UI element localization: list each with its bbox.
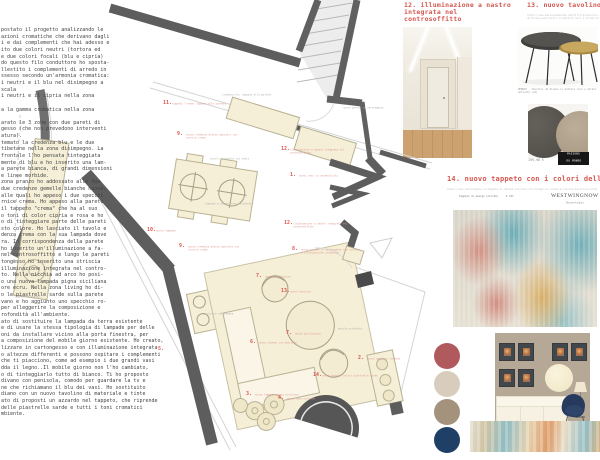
description-line: ito due colori neutri (tortora ed (1, 47, 164, 54)
description-line: sto colore. Ho lasciato il tavolo e (1, 226, 164, 233)
color-swatch (434, 399, 460, 425)
description-line: nel controsoffitto e lungo le pareti (1, 252, 164, 259)
description-line: vano e ho aggiunto uno specchio ro- (1, 299, 164, 306)
description-line: e di usare la stessa tipologia di lampad… (1, 325, 164, 332)
description-line: o una nuova lampada pigna siciliana (1, 279, 164, 286)
description-line: ato di proposti un azzardo nel tappeto, … (1, 398, 164, 405)
label-annotation: illuminazione a nastro integrata nel con… (293, 223, 353, 229)
description-line: mbiente. (1, 411, 164, 418)
description-line: o altezze differenti e possono ospitare … (1, 352, 164, 359)
rug-heading: 14. nuovo tappeto con i colori delle pia… (447, 176, 600, 183)
description-line: divano con penisola, comodo per guardare… (1, 378, 164, 385)
description-line: ssesso secondo un'armonia cromatica: (1, 73, 164, 80)
label-annotation: nuova parete in cartongesso con nicchie … (301, 249, 361, 255)
description-line: postato il progetto analizzando le (1, 27, 164, 34)
credenza (223, 97, 359, 166)
rug-price: € 427 (506, 195, 566, 201)
door-triangle (370, 238, 392, 258)
description-line: i neutri e il blu nel disimpegno a (1, 80, 164, 87)
lighting-heading: 12. illuminazione a nastro integrata nel… (404, 2, 516, 24)
description-line: i e dai complementi che hai adesso e (1, 40, 164, 47)
description-line: temato la credenza blu e le due (1, 140, 164, 147)
description-line: llestito i complementi di arredo in (1, 67, 164, 74)
living-room (204, 242, 385, 437)
description-line: diano con un nuovo tavolino di materiale… (1, 391, 164, 398)
description-line (1, 100, 164, 107)
label-annotation: nuovo specchio rotondo (367, 358, 427, 361)
description-line: zona pranzo ho addossato alle due (1, 179, 164, 186)
description-line: dda il legno..Il mobile giorno non l'ho … (1, 365, 164, 372)
section-table: 13. nuovo tavolino living (527, 2, 600, 9)
label-annotation: nuova poltroncina (265, 276, 325, 279)
description-line: oni da installare vicino alla porta fine… (1, 332, 164, 339)
description-line: ra. In corrispondenza della parete (1, 239, 164, 246)
description-line: che ti piacciono, come ad esempio i due … (1, 358, 164, 365)
description-line: a composizione del mobile giorno esisten… (1, 338, 164, 345)
description-line: ne che richiamano il blu dei vasi. Ho so… (1, 385, 164, 392)
label-annotation: illuminazione a nastro integrata nel con… (290, 149, 350, 155)
description-line: o di tinteggiarlo tutto di bianco. Ti ho… (1, 372, 164, 379)
plan-note: mobile esistente (338, 328, 403, 331)
color-palette (434, 343, 461, 455)
label-annotation: nuovo divano con penisola (259, 342, 319, 345)
label-annotation: nuova credenza bianca specchio con corni… (186, 134, 246, 140)
plan-note: credenza blu (appesa alla parete) (222, 94, 287, 97)
plan-note: nicchia attrezzata (206, 313, 271, 316)
section-rug: 14. nuovo tappeto con i colori delle pia… (447, 176, 600, 183)
description-line: il tappeto "crema" che ha al suo (1, 206, 164, 213)
table-url[interactable]: https://www.maisonsdumonde.com/IT/it/p/t… (527, 14, 599, 25)
dining-table (167, 152, 258, 228)
description-line: o toni di color cipria e rosa e ho (1, 213, 164, 220)
section-lighting: 12. illuminazione a nastro integrata nel… (404, 2, 516, 24)
description-line: atura). (1, 133, 164, 140)
description-line: a parete bianca, di grandi dimensioni (1, 166, 164, 173)
color-swatch (434, 343, 460, 369)
description-line: e due colori focali (blu e cipria) (1, 54, 164, 61)
label-annotation: nuovo tavolino (290, 291, 350, 294)
plan-note: nuova parete in cartongesso (343, 107, 408, 110)
table-caption: HENRIK - Tavolini da divano in metallo n… (518, 88, 598, 102)
description-line: azioni cromatiche che derivano dagli (1, 34, 164, 41)
description-line: ato di sostituire la lampada da terra es… (1, 319, 164, 326)
label-annotation: tappeto "crema" (appeso alla parete) (172, 103, 232, 106)
description-line: ore ecru. Nella zona living ho di- (1, 285, 164, 292)
color-swatch (434, 371, 460, 397)
plan-note: lampada a sospensione esistente (205, 203, 270, 206)
description-line: i neutri e il cipria nella zona (1, 93, 164, 100)
description-line: gesso (che non prevedono interventi (1, 126, 164, 133)
description-line: per alleggerire la composizione e (1, 305, 164, 312)
description-line: tibetane nella zona disimpegno. La (1, 146, 164, 153)
description-line: lizzare in cartongesso e con illuminazio… (1, 345, 164, 352)
description-line: illuminazione integrata nel contro- (1, 266, 164, 273)
description-line: due credenze gemelle bianche nuove, (1, 186, 164, 193)
label-annotation: nuova credenza bianca specchio con corni… (188, 246, 248, 252)
description-line: arato le 3 zone con due pareti di (1, 120, 164, 127)
presentation-board: postato il progetto analizzando leazioni… (0, 0, 600, 460)
description-line: denza crema con la sua lampada dove (1, 232, 164, 239)
description-line: scala (1, 87, 164, 94)
description-line (1, 113, 164, 120)
label-annotation: nuovo tappeto colori piastrelle sarde (322, 375, 382, 378)
description-line: frontale l'ho pensata tinteggiata (1, 153, 164, 160)
description-line: to. Nella nicchia ad arco ho posi- (1, 272, 164, 279)
description-line: rnice crema. Ho appeso alla parete (1, 199, 164, 206)
label-annotation: nuovi vasi in ceramica blu (299, 175, 359, 178)
label-annotation: nuova lampada pigna siciliana (255, 394, 315, 397)
description-line: do questo filo conduttore ho sposta- (1, 60, 164, 67)
table-heading: 13. nuovo tavolino living (527, 2, 600, 9)
description-line: tongesso ho inserito una striscia (1, 259, 164, 266)
description-line: a la gamma cromatica nella zona (1, 107, 164, 114)
project-description: postato il progetto analizzando leazioni… (1, 27, 164, 418)
description-line: ho inserito un'illuminazione a fa- (1, 246, 164, 253)
plan-note: lampada esistente (14, 296, 79, 299)
description-line: e linee morbide. (1, 173, 164, 180)
plan-note: tavolo esistente con sedie (210, 158, 275, 161)
label-annotation: nuova poltroncina (295, 333, 355, 336)
description-line: delle piastrelle sarde e tutti i toni cr… (1, 405, 164, 412)
color-swatch (434, 427, 460, 453)
description-line: o di tinteggiare parte delle pareti (1, 219, 164, 226)
rug-url[interactable]: https://www.westwingnow.it/tappeto-di-de… (447, 188, 597, 193)
label-annotation: nuovi vasi colorati (287, 398, 347, 401)
label-annotation: nuova lampada (156, 230, 216, 233)
description-line: mente di blu e ho inserito una lam- (1, 160, 164, 167)
description-line: alle quali ho appeso i due specchi (1, 193, 164, 200)
description-line: rofondità all'ambiente. (1, 312, 164, 319)
